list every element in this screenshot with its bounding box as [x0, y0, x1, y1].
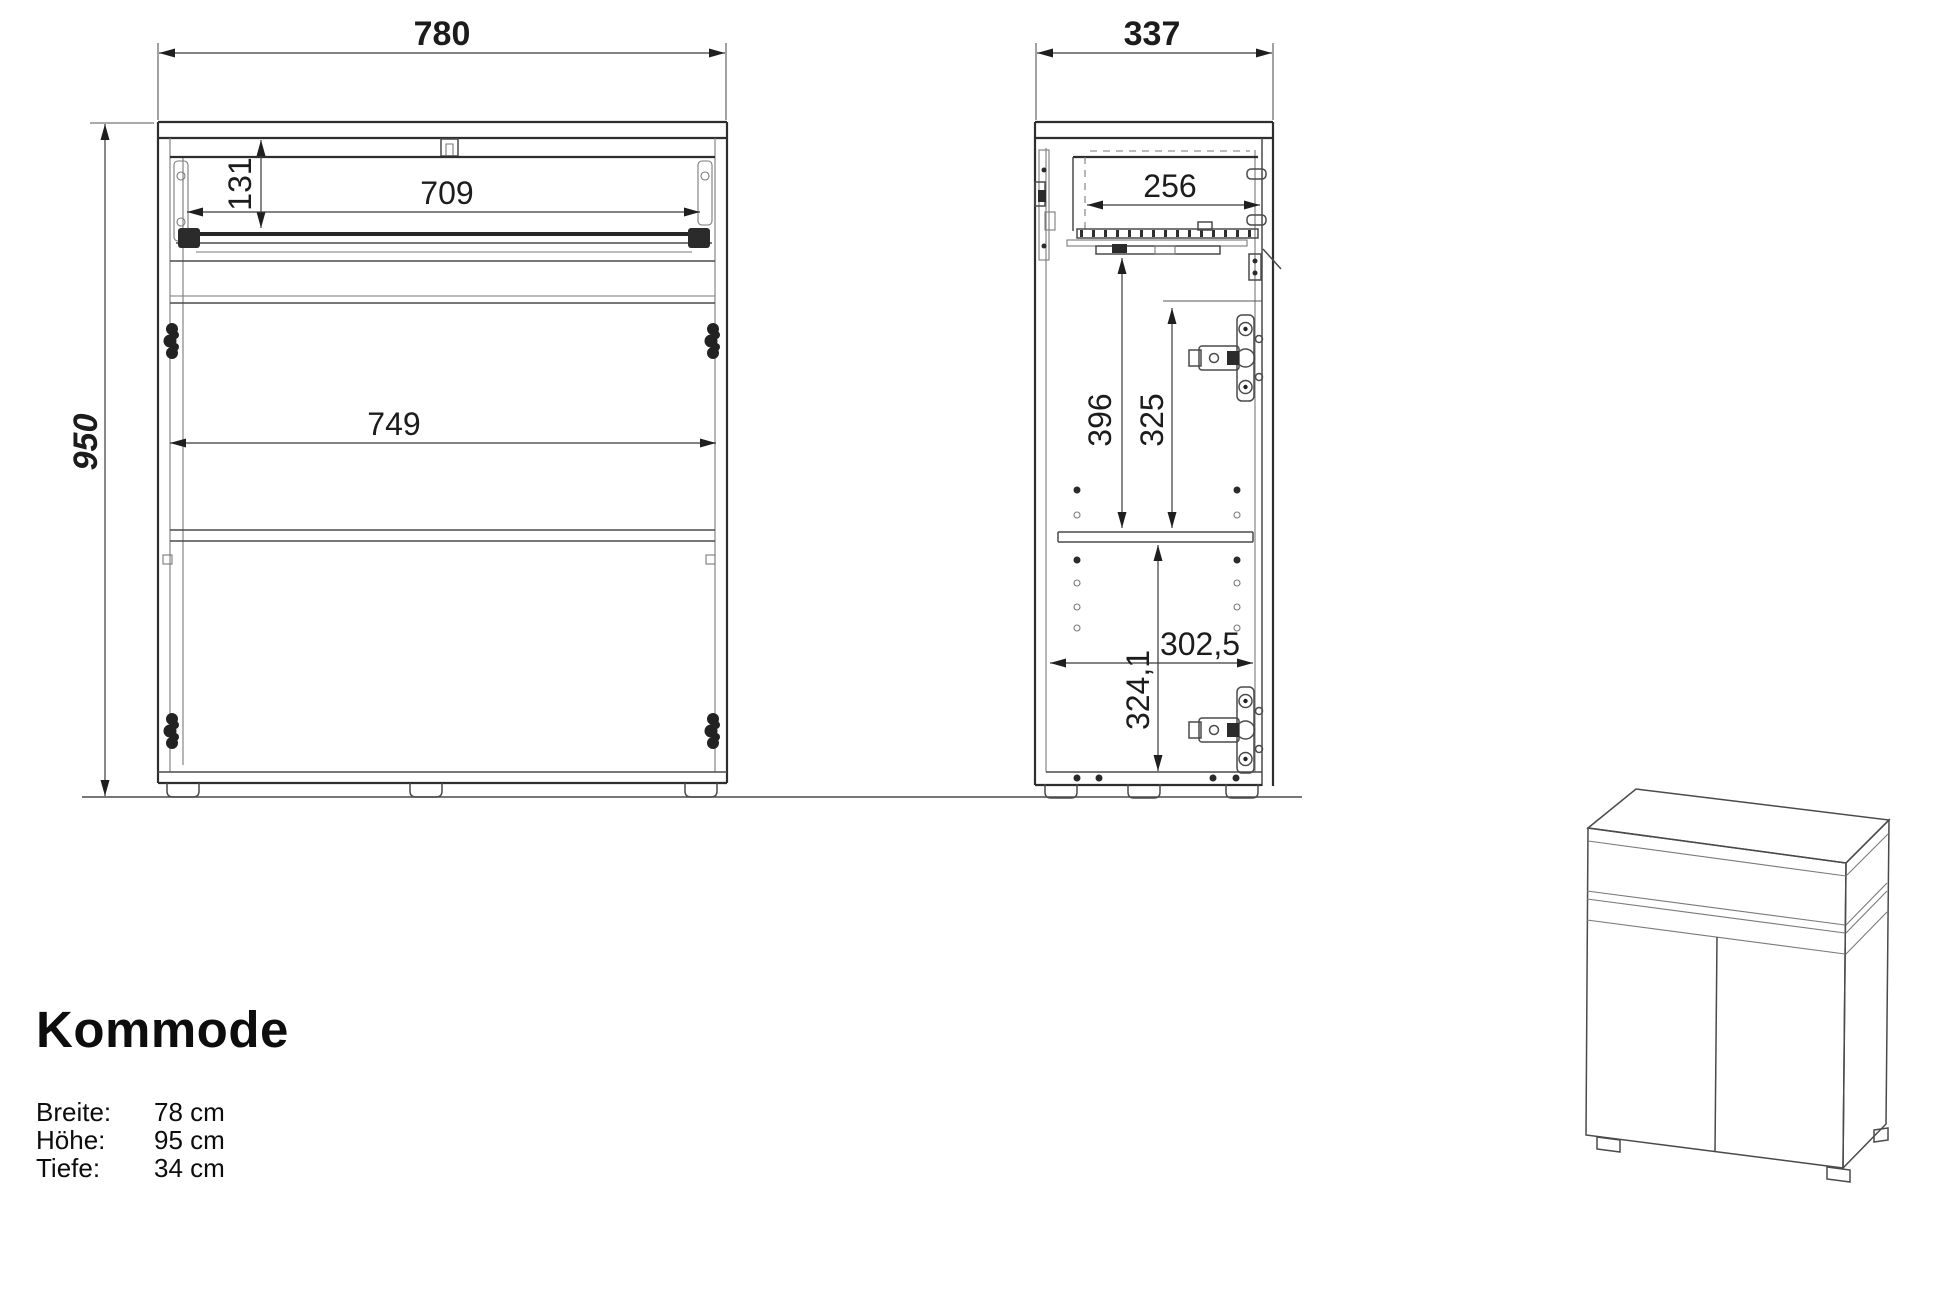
product-title: Kommode: [36, 1002, 289, 1058]
spec-label: Höhe:: [36, 1126, 154, 1154]
side-view: 337 256 396 325 302,5: [1035, 15, 1281, 798]
dim-label-780: 780: [414, 15, 471, 53]
dim-drawer-height: 131: [222, 140, 266, 228]
spec-value: 34 cm: [154, 1153, 225, 1183]
spec-row-hoehe: Höhe:95 cm: [36, 1126, 289, 1154]
dim-inner-width: 749: [170, 406, 716, 448]
side-bottom: [1045, 775, 1258, 799]
dim-upper-compartment-height: 396: [1082, 258, 1127, 528]
front-hinge-marks: [164, 323, 721, 749]
dim-label-950: 950: [67, 414, 105, 471]
dim-label-324-1: 324,1: [1120, 650, 1156, 730]
side-shelf: [1058, 532, 1253, 542]
dim-front-overall-width: 780: [158, 15, 726, 120]
spec-row-breite: Breite:78 cm: [36, 1098, 289, 1126]
side-hinges: [1189, 315, 1263, 773]
top-clip: [441, 139, 458, 156]
dim-side-overall-depth: 337: [1036, 15, 1273, 120]
spec-row-tiefe: Tiefe:34 cm: [36, 1154, 289, 1182]
dim-label-337: 337: [1124, 15, 1181, 53]
dim-label-709: 709: [420, 175, 473, 211]
iso-foot: [1827, 1167, 1850, 1182]
spec-label: Tiefe:: [36, 1154, 154, 1182]
dim-label-302-5: 302,5: [1160, 626, 1240, 662]
front-shelf: [163, 530, 715, 564]
dim-label-396: 396: [1082, 393, 1118, 446]
front-feet: [167, 783, 717, 797]
spec-value: 95 cm: [154, 1125, 225, 1155]
spec-value: 78 cm: [154, 1097, 225, 1127]
iso-foot: [1597, 1137, 1620, 1152]
dim-label-256: 256: [1143, 168, 1196, 204]
side-back-hardware: [1035, 150, 1055, 260]
dim-label-325: 325: [1134, 393, 1170, 446]
front-view: 780 950 131 709 749: [67, 15, 727, 797]
dim-front-overall-height: 950: [67, 123, 154, 796]
spec-label: Breite:: [36, 1098, 154, 1126]
technical-drawing-sheet: 780 950 131 709 749: [0, 0, 1940, 1315]
front-carcass: [158, 122, 727, 783]
product-specs: Breite:78 cm Höhe:95 cm Tiefe:34 cm: [36, 1098, 289, 1182]
dim-drawer-depth: 256: [1087, 168, 1260, 210]
dim-label-131: 131: [222, 157, 258, 210]
iso-door-split: [1715, 937, 1717, 1152]
dim-drawer-width: 709: [187, 175, 700, 217]
product-info: Kommode Breite:78 cm Höhe:95 cm Tiefe:34…: [36, 1002, 289, 1182]
drawing-svg: 780 950 131 709 749: [0, 0, 1940, 1315]
iso-view: [1586, 789, 1889, 1182]
dim-lower-compartment-height: 324,1: [1120, 545, 1163, 771]
dim-label-749: 749: [367, 406, 420, 442]
